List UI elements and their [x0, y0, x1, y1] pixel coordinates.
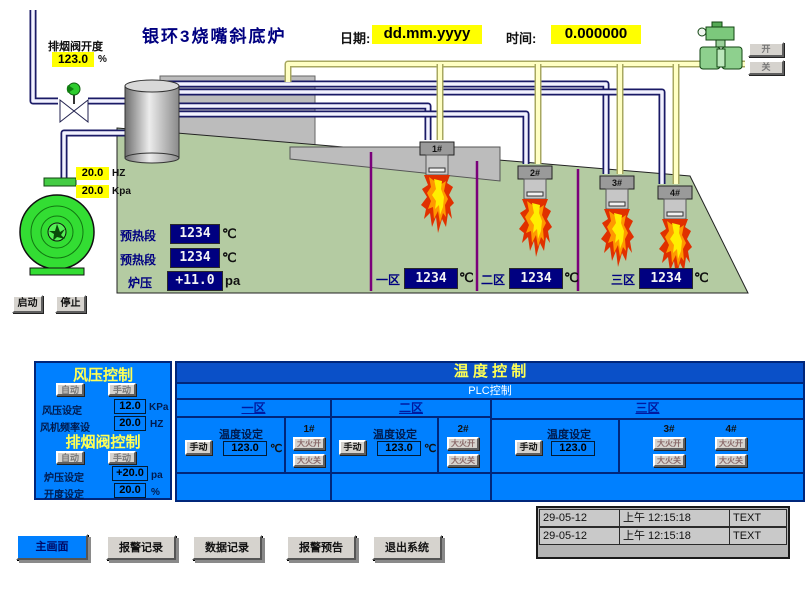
nav-alarm-notice-button[interactable]: 报警预告: [286, 535, 356, 560]
temp-panel-title: 温 度 控 制: [177, 363, 803, 381]
furnace-pressure-set-unit: pa: [151, 470, 163, 481]
wind-manual-button[interactable]: 手动: [108, 383, 136, 396]
fan-freq-value: 20.0: [76, 167, 109, 180]
opening-set-unit: %: [151, 487, 160, 498]
gas-valve-close-button[interactable]: 关: [748, 60, 784, 75]
preheat2-label: 预热段: [120, 251, 156, 268]
burner1-control-label: 1#: [289, 424, 329, 435]
zone1-set-unit: ℃: [270, 442, 282, 455]
zone3-set-label: 温度设定: [547, 426, 591, 442]
zone2-set-unit: ℃: [424, 442, 436, 455]
fan-start-button[interactable]: 启动: [12, 295, 43, 313]
zone1-temp-unit: ℃: [459, 270, 474, 286]
temp-panel-titlebar: 温 度 控 制: [177, 363, 803, 384]
preheat1-value: 1234: [170, 224, 220, 244]
alarm-time: 上午 12:15:18: [620, 510, 730, 526]
fan-freq-set-unit: HZ: [150, 419, 163, 430]
fan-stop-button[interactable]: 停止: [55, 295, 86, 313]
burner4-bigfire-on-button[interactable]: 大火开: [715, 437, 747, 450]
burner-2-label: 2#: [518, 168, 552, 178]
alarm-row[interactable]: 29-05-12 上午 12:15:18 TEXT: [539, 527, 787, 545]
zone2-temp-label: 二区: [481, 271, 505, 288]
preheat2-unit: ℃: [222, 250, 237, 266]
alarm-text: TEXT: [730, 510, 786, 526]
zone2-header[interactable]: 二区: [332, 400, 492, 418]
exhaust-auto-button[interactable]: 自动: [56, 451, 84, 464]
preheat2-value: 1234: [170, 248, 220, 268]
date-label: 日期:: [340, 28, 370, 47]
fan-freq-unit: HZ: [112, 168, 125, 179]
burner2-bigfire-off-button[interactable]: 大火关: [447, 454, 479, 467]
burner-3-label: 3#: [600, 178, 634, 188]
zone3-set-value[interactable]: 123.0: [551, 441, 595, 456]
fan-freq-set-value[interactable]: 20.0: [114, 416, 146, 431]
nav-data-record-button[interactable]: 数据记录: [192, 535, 262, 560]
zone1-manual-button[interactable]: 手动: [185, 440, 212, 455]
zone1-header[interactable]: 一区: [177, 400, 332, 418]
zone3-temp-value: 1234: [639, 268, 693, 289]
burner3-bigfire-off-button[interactable]: 大火关: [653, 454, 685, 467]
burner3-bigfire-on-button[interactable]: 大火开: [653, 437, 685, 450]
opening-set-value[interactable]: 20.0: [114, 483, 146, 498]
zone3-temp-unit: ℃: [694, 270, 709, 286]
divider: [618, 418, 620, 472]
gas-valve-open-button[interactable]: 开: [748, 42, 784, 57]
recuperator-icon: [125, 80, 179, 163]
burner4-control-label: 4#: [711, 424, 751, 435]
burner4-bigfire-off-button[interactable]: 大火关: [715, 454, 747, 467]
alarm-date: 29-05-12: [540, 528, 620, 544]
exhaust-valve-unit: %: [98, 54, 107, 65]
wind-pressure-set-label: 风压设定: [42, 402, 82, 417]
zone2-set-value[interactable]: 123.0: [377, 441, 421, 456]
zone2-temp-unit: ℃: [564, 270, 579, 286]
gas-control-valve-icon[interactable]: [698, 22, 742, 69]
furnace-pressure-set-value[interactable]: +20.0: [112, 466, 148, 481]
exhaust-valve-value: 123.0: [52, 52, 94, 67]
burner-1-label: 1#: [420, 144, 454, 154]
burner2-control-label: 2#: [443, 424, 483, 435]
zone1-temp-label: 一区: [376, 271, 400, 288]
time-label: 时间:: [506, 28, 536, 47]
alarm-text: TEXT: [730, 528, 786, 544]
burner-4-label: 4#: [658, 188, 692, 198]
page-title: 银环3烧嘴斜底炉: [142, 22, 286, 47]
wind-auto-button[interactable]: 自动: [56, 383, 84, 396]
divider: [284, 418, 286, 472]
alarm-row[interactable]: 29-05-12 上午 12:15:18 TEXT: [539, 509, 787, 527]
exhaust-panel-title: 排烟阀控制: [36, 431, 170, 452]
alarm-list: 29-05-12 上午 12:15:18 TEXT 29-05-12 上午 12…: [536, 506, 790, 559]
wind-pressure-set-unit: KPa: [149, 402, 168, 413]
furnace-pressure-value: +11.0: [167, 271, 223, 291]
burner1-bigfire-on-button[interactable]: 大火开: [293, 437, 325, 450]
zone3-temp-label: 三区: [611, 271, 635, 288]
divider: [330, 418, 332, 472]
plc-mode-label: PLC控制: [177, 384, 803, 400]
burner3-control-label: 3#: [649, 424, 689, 435]
zone2-set-label: 温度设定: [373, 426, 417, 442]
burner2-bigfire-on-button[interactable]: 大火开: [447, 437, 479, 450]
date-value: dd.mm.yyyy: [372, 25, 482, 44]
divider: [330, 474, 332, 500]
divider: [490, 418, 492, 472]
exhaust-valve-icon[interactable]: [60, 83, 88, 122]
opening-set-label: 开度设定: [44, 486, 84, 501]
temp-control-panel: 温 度 控 制 PLC控制 一区 二区 三区 手动 温度设定 123.0 ℃ 1…: [175, 361, 805, 502]
zone3-header[interactable]: 三区: [492, 400, 803, 420]
zone3-manual-button[interactable]: 手动: [515, 440, 542, 455]
nav-main-screen-button[interactable]: 主画面: [16, 534, 88, 560]
nav-alarm-record-button[interactable]: 报警记录: [106, 535, 176, 560]
nav-exit-system-button[interactable]: 退出系统: [372, 535, 442, 560]
wind-control-panel: 风压控制 自动 手动 风压设定 12.0 KPa 风机频率设 20.0 HZ 排…: [34, 361, 172, 500]
zone2-temp-value: 1234: [509, 268, 563, 289]
fan-pressure-value: 20.0: [76, 185, 109, 198]
wind-panel-title: 风压控制: [36, 364, 170, 385]
alarm-time: 上午 12:15:18: [620, 528, 730, 544]
zone1-temp-value: 1234: [404, 268, 458, 289]
alarm-date: 29-05-12: [540, 510, 620, 526]
furnace-pressure-label: 炉压: [128, 274, 152, 291]
zone2-manual-button[interactable]: 手动: [339, 440, 366, 455]
burner1-bigfire-off-button[interactable]: 大火关: [293, 454, 325, 467]
hmi-screen: 银环3烧嘴斜底炉 日期: dd.mm.yyyy 时间: 0.000000 开 关…: [0, 0, 809, 606]
preheat1-unit: ℃: [222, 226, 237, 242]
time-value: 0.000000: [551, 25, 641, 44]
zone1-set-value[interactable]: 123.0: [223, 441, 267, 456]
divider: [490, 474, 492, 500]
fan-pressure-unit: Kpa: [112, 186, 131, 197]
furnace-pressure-unit: pa: [225, 273, 240, 288]
zone1-set-label: 温度设定: [219, 426, 263, 442]
divider: [437, 418, 439, 472]
furnace-pressure-set-label: 炉压设定: [44, 469, 84, 484]
exhaust-manual-button[interactable]: 手动: [108, 451, 136, 464]
wind-pressure-set-value[interactable]: 12.0: [114, 399, 146, 414]
preheat1-label: 预热段: [120, 227, 156, 244]
